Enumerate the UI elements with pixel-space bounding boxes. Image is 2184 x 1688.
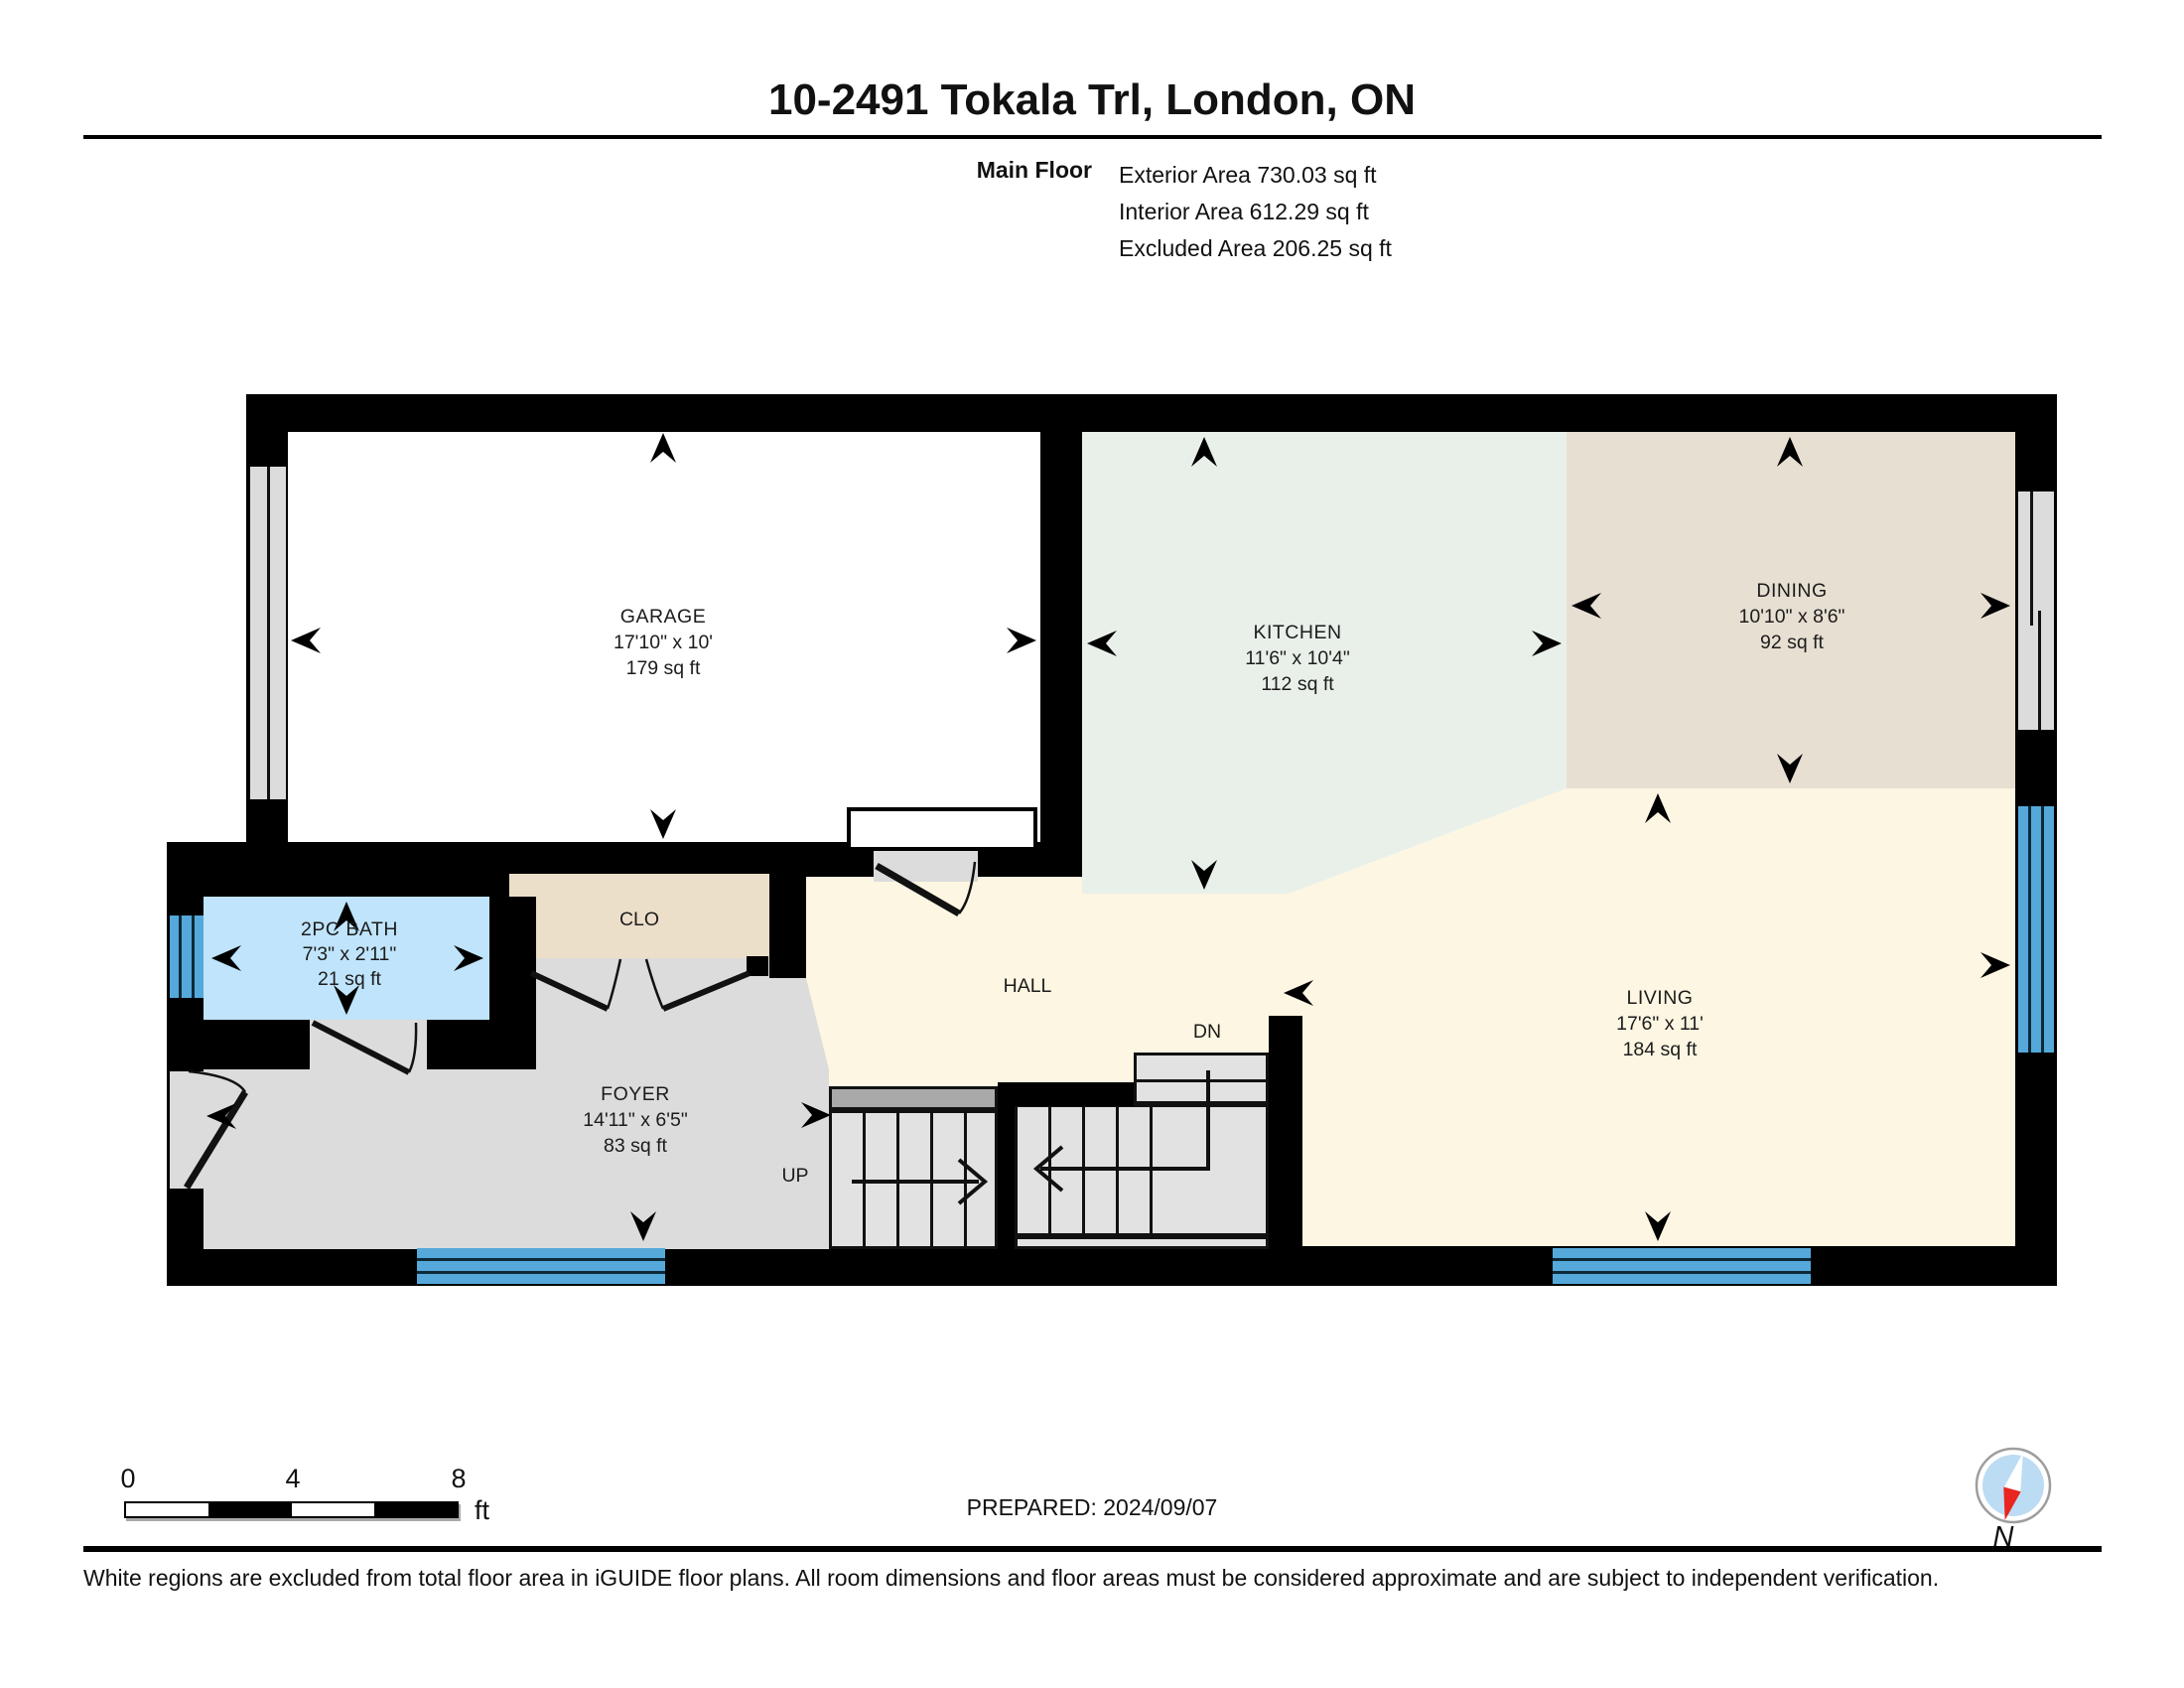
wall [1040, 394, 1082, 884]
garage-step-landing [847, 807, 1037, 851]
prepared-date: PREPARED: 2024/09/07 [0, 1494, 2184, 1521]
living-front-window [1553, 1248, 1811, 1284]
dining-sliding-door [2018, 492, 2054, 730]
wall [167, 842, 204, 1286]
wall [246, 394, 2057, 432]
wall [204, 1020, 310, 1069]
hall-label: HALL [1004, 973, 1052, 999]
stairs-down-landing [1134, 1053, 1269, 1104]
closet-label: CLO [619, 907, 659, 932]
floor-label: Main Floor [893, 157, 1092, 184]
door-jamb [747, 956, 768, 976]
wall [1269, 1016, 1302, 1251]
garage-side-window [250, 467, 286, 799]
stairs-up-label: UP [781, 1163, 808, 1189]
door-jamb [508, 956, 530, 976]
footer-divider [83, 1546, 2102, 1552]
wall [427, 1020, 536, 1069]
living-side-window [2018, 806, 2054, 1053]
bath-door-opening [310, 1020, 427, 1069]
wall [1015, 1082, 1134, 1106]
entry-door-opening [170, 1071, 204, 1189]
bath-window [170, 915, 204, 998]
wall [998, 1082, 1015, 1249]
room-foyer [204, 1069, 829, 1249]
kitchen-label: KITCHEN 11'6" x 10'4" 112 sq ft [1245, 620, 1350, 697]
bath-label: 2PC BATH 7'3" x 2'11" 21 sq ft [301, 917, 398, 992]
stairs-up [829, 1110, 998, 1249]
garage-label: GARAGE 17'10" x 10' 179 sq ft [614, 604, 713, 681]
garage-door-opening [874, 851, 978, 882]
interior-area: Interior Area 612.29 sq ft [1119, 194, 1392, 230]
wall [769, 874, 806, 978]
page-title: 10-2491 Tokala Trl, London, ON [0, 75, 2184, 125]
exterior-area: Exterior Area 730.03 sq ft [1119, 157, 1392, 194]
area-summary: Exterior Area 730.03 sq ft Interior Area… [1119, 157, 1392, 267]
excluded-area: Excluded Area 206.25 sq ft [1119, 230, 1392, 267]
dining-label: DINING 10'10" x 8'6" 92 sq ft [1739, 578, 1845, 655]
stairs-down [1015, 1104, 1269, 1236]
stairs-up-landing [829, 1086, 998, 1110]
foyer-window [417, 1248, 665, 1284]
stairs-down-label: DN [1193, 1019, 1221, 1045]
foyer-label: FOYER 14'11" x 6'5" 83 sq ft [583, 1081, 688, 1159]
disclaimer-text: White regions are excluded from total fl… [83, 1565, 1939, 1592]
header-divider [83, 135, 2102, 139]
living-label: LIVING 17'6" x 11' 184 sq ft [1616, 985, 1704, 1062]
stairs-down-bottom-tread [1015, 1236, 1269, 1249]
